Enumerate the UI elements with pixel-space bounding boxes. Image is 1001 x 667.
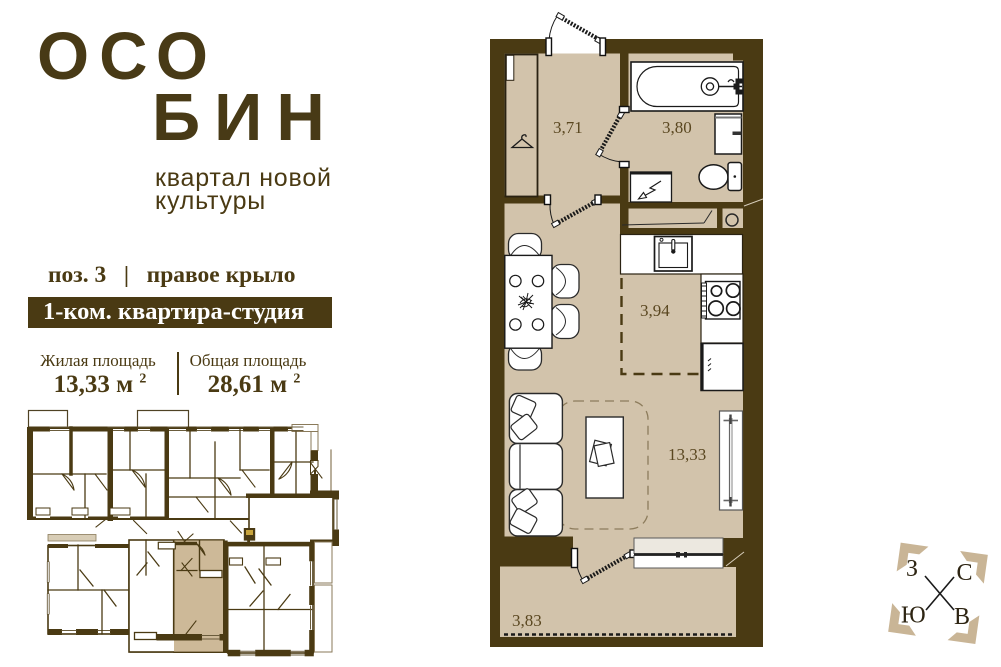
svg-text:13,33: 13,33	[668, 445, 706, 464]
svg-text:З: З	[906, 556, 918, 582]
svg-text:Ю: Ю	[901, 603, 926, 629]
svg-text:3,94: 3,94	[640, 301, 670, 320]
svg-text:В: В	[954, 604, 970, 630]
svg-text:С: С	[957, 560, 973, 586]
svg-text:3,80: 3,80	[662, 118, 692, 137]
svg-text:3,71: 3,71	[553, 118, 583, 137]
svg-text:3,83: 3,83	[512, 611, 542, 630]
